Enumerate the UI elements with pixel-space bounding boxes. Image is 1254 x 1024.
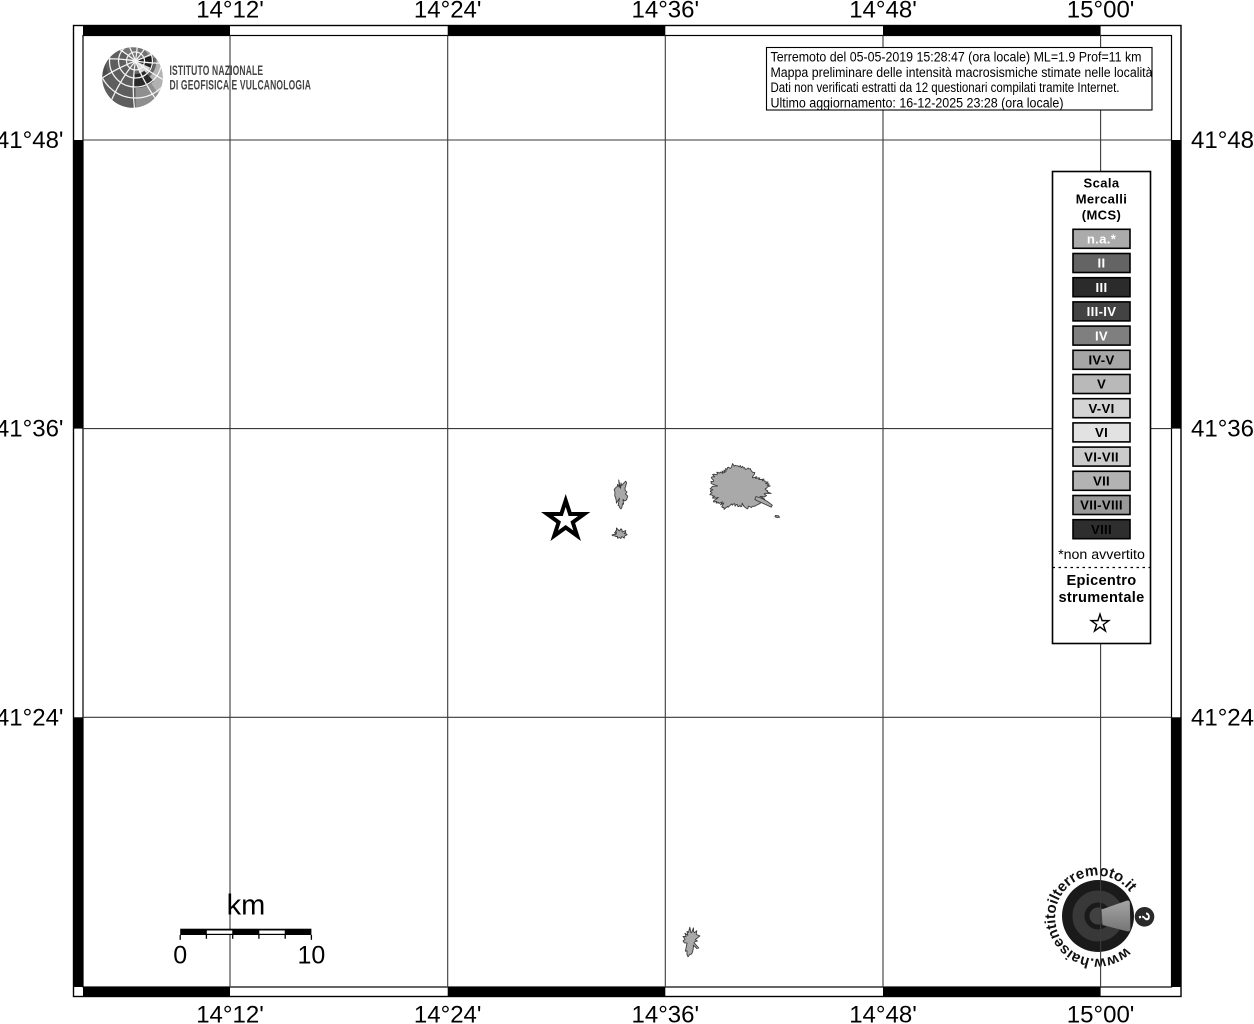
svg-text:Terremoto del 05-05-2019 15:28: Terremoto del 05-05-2019 15:28:47 (ora l… (771, 50, 1142, 65)
svg-text:III: III (1096, 280, 1108, 295)
svg-text:VI-VII: VI-VII (1084, 449, 1119, 464)
svg-text:*non avvertito: *non avvertito (1058, 547, 1145, 563)
svg-text:IV: IV (1095, 328, 1108, 343)
svg-text:41°36': 41°36' (0, 416, 64, 443)
svg-text:10: 10 (297, 942, 325, 970)
svg-text:41°48': 41°48' (0, 127, 64, 154)
svg-text:14°36': 14°36' (632, 1002, 700, 1024)
svg-text:II: II (1098, 256, 1106, 271)
svg-text:(MCS): (MCS) (1082, 208, 1122, 223)
svg-text:V: V (1097, 377, 1106, 392)
svg-text:strumentale: strumentale (1058, 590, 1144, 606)
svg-text:Epicentro: Epicentro (1066, 573, 1136, 589)
svg-text:41°24': 41°24' (0, 704, 64, 731)
svg-text:Mappa preliminare delle intens: Mappa preliminare delle intensità macros… (771, 65, 1154, 80)
svg-text:V-VI: V-VI (1088, 401, 1114, 416)
svg-text:VII-VIII: VII-VIII (1080, 498, 1123, 513)
svg-text:41°24': 41°24' (1191, 704, 1254, 731)
svg-text:15°00': 15°00' (1067, 1002, 1135, 1024)
svg-text:DI GEOFISICA E VULCANOLOGIA: DI GEOFISICA E VULCANOLOGIA (170, 77, 312, 93)
svg-text:VIII: VIII (1091, 522, 1112, 537)
svg-text:14°24': 14°24' (414, 1002, 482, 1024)
svg-text:41°48': 41°48' (1191, 127, 1254, 154)
svg-text:VII: VII (1093, 474, 1110, 489)
svg-text:0: 0 (173, 942, 187, 970)
svg-text:VI: VI (1095, 425, 1108, 440)
svg-text:Scala: Scala (1084, 176, 1120, 191)
svg-text:14°48': 14°48' (849, 0, 917, 24)
svg-text:km: km (227, 890, 266, 922)
svg-text:Mercalli: Mercalli (1076, 192, 1128, 207)
svg-text:III-IV: III-IV (1087, 304, 1117, 319)
svg-text:n.a.*: n.a.* (1087, 232, 1117, 247)
svg-text:14°24': 14°24' (414, 0, 482, 24)
svg-text:41°36': 41°36' (1191, 416, 1254, 443)
svg-text:IV-V: IV-V (1088, 353, 1114, 368)
svg-text:14°12': 14°12' (196, 1002, 264, 1024)
svg-text:Ultimo aggiornamento: 16-12-20: Ultimo aggiornamento: 16-12-2025 23:28 (… (771, 95, 1064, 110)
svg-text:15°00': 15°00' (1067, 0, 1135, 24)
svg-text:14°48': 14°48' (849, 1002, 917, 1024)
svg-text:ISTITUTO NAZIONALE: ISTITUTO NAZIONALE (170, 63, 264, 79)
svg-text:14°36': 14°36' (632, 0, 700, 24)
svg-text:14°12': 14°12' (196, 0, 264, 24)
svg-text:Dati non verificati estratti d: Dati non verificati estratti da 12 quest… (771, 80, 1120, 95)
